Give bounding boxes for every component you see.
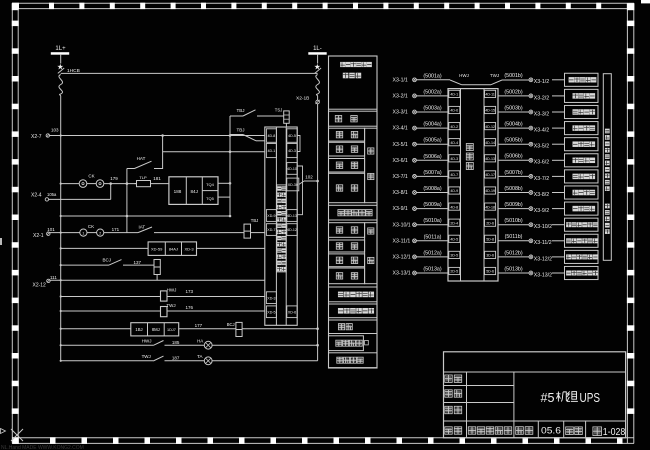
svg-text:X3-12/2: X3-12/2 xyxy=(534,256,552,262)
svg-text:5D-8: 5D-8 xyxy=(486,238,494,242)
svg-text:BCJ: BCJ xyxy=(227,322,235,327)
svg-text:(5004a): (5004a) xyxy=(423,122,441,128)
svg-text:(5001b): (5001b) xyxy=(504,73,522,79)
svg-text:(5005b): (5005b) xyxy=(504,138,522,144)
svg-text:(5006a): (5006a) xyxy=(423,154,441,160)
svg-text:105a: 105a xyxy=(47,192,57,197)
svg-text:4D-12: 4D-12 xyxy=(287,228,297,232)
svg-text:X3-1/2: X3-1/2 xyxy=(534,79,549,85)
svg-text:UPS: UPS xyxy=(580,391,601,405)
svg-text:179: 179 xyxy=(110,176,118,181)
svg-text:HAT: HAT xyxy=(137,156,146,161)
svg-text:4D-15: 4D-15 xyxy=(485,109,495,113)
svg-text:(5011b): (5011b) xyxy=(505,234,523,240)
svg-text:(5002b): (5002b) xyxy=(504,89,522,95)
svg-text:(5013b): (5013b) xyxy=(504,266,522,272)
svg-text:CK: CK xyxy=(88,224,94,229)
svg-text:X3-2/1: X3-2/1 xyxy=(393,94,408,100)
svg-text:X2-7: X2-7 xyxy=(31,134,42,140)
svg-text:3D-5: 3D-5 xyxy=(450,254,458,258)
svg-text:(5007a): (5007a) xyxy=(423,170,441,176)
svg-text:1L+: 1L+ xyxy=(55,46,66,52)
svg-text:4D-3: 4D-3 xyxy=(450,157,458,161)
svg-text:HWJ: HWJ xyxy=(167,288,177,293)
svg-text:4D-8: 4D-8 xyxy=(268,134,276,138)
svg-text:BCJ: BCJ xyxy=(103,258,112,263)
svg-text:181: 181 xyxy=(153,176,161,181)
svg-text:NL.Hand MADE WWW.KONG2.COM: NL.Hand MADE WWW.KONG2.COM xyxy=(1,445,84,450)
svg-text:173: 173 xyxy=(186,289,194,294)
svg-text:X3-7/2: X3-7/2 xyxy=(534,176,549,182)
svg-text:(5010b): (5010b) xyxy=(504,218,522,224)
svg-text:TWJ: TWJ xyxy=(142,354,151,359)
svg-text:(5012a): (5012a) xyxy=(423,250,441,256)
svg-text:171: 171 xyxy=(112,227,120,232)
svg-text:4D-10: 4D-10 xyxy=(287,167,297,171)
svg-text:X3-1/1: X3-1/1 xyxy=(393,77,408,83)
svg-text:4D-12: 4D-12 xyxy=(485,125,495,129)
svg-text:2: 2 xyxy=(99,231,101,235)
svg-text:TWJ: TWJ xyxy=(166,303,175,308)
svg-text:XD-3: XD-3 xyxy=(184,246,194,251)
svg-text:X3-11/2: X3-11/2 xyxy=(534,240,552,246)
svg-text:4D-5: 4D-5 xyxy=(450,238,458,242)
svg-text:4D-14: 4D-14 xyxy=(485,141,495,145)
svg-text:(5007b): (5007b) xyxy=(504,170,522,176)
svg-text:4D-1: 4D-1 xyxy=(268,149,276,153)
svg-text:X3-13/2: X3-13/2 xyxy=(534,272,552,278)
svg-text:TWJ: TWJ xyxy=(490,73,499,78)
svg-text:4D-17: 4D-17 xyxy=(485,173,495,177)
svg-text:IAT: IAT xyxy=(138,225,145,230)
svg-text:2D-4: 2D-4 xyxy=(450,221,458,225)
svg-text:TLP: TLP xyxy=(139,175,147,180)
svg-text:X3-4/2: X3-4/2 xyxy=(534,128,549,134)
svg-text:4D-18: 4D-18 xyxy=(485,205,495,209)
svg-text:1L-: 1L- xyxy=(313,46,322,52)
svg-text:TBJ: TBJ xyxy=(236,108,244,113)
svg-text:XD-59: XD-59 xyxy=(151,246,163,251)
svg-text:2D-5: 2D-5 xyxy=(450,270,458,274)
svg-text:4D-1: 4D-1 xyxy=(450,93,458,97)
svg-text:X3-6/1: X3-6/1 xyxy=(393,158,408,164)
svg-text:188: 188 xyxy=(174,189,182,194)
svg-text:(5008a): (5008a) xyxy=(423,186,441,192)
svg-text:X3-2/2: X3-2/2 xyxy=(534,95,549,101)
svg-text:X3-3/1: X3-3/1 xyxy=(393,110,408,116)
svg-text:X3-8/2: X3-8/2 xyxy=(534,192,549,198)
svg-text:8MJ: 8MJ xyxy=(152,327,160,332)
svg-text:X3-11/1: X3-11/1 xyxy=(393,238,411,244)
svg-text:4D-11: 4D-11 xyxy=(485,93,495,97)
svg-text:(5002a): (5002a) xyxy=(423,89,441,95)
svg-text:XD-30: XD-30 xyxy=(288,183,298,187)
svg-text:X2-1: X2-1 xyxy=(33,233,44,239)
svg-text:1DJ7: 1DJ7 xyxy=(167,328,176,332)
svg-text:XD-3: XD-3 xyxy=(267,296,275,300)
svg-text:84J: 84J xyxy=(190,189,197,194)
svg-text:4D-2: 4D-2 xyxy=(450,125,458,129)
svg-text:(5009a): (5009a) xyxy=(423,202,441,208)
svg-text:4D-6: 4D-6 xyxy=(450,109,458,113)
svg-text:TBJ: TBJ xyxy=(251,218,258,223)
svg-text:(5008b): (5008b) xyxy=(504,186,522,192)
svg-text:HWJ: HWJ xyxy=(459,73,469,78)
svg-text:CK: CK xyxy=(88,174,94,179)
svg-text:(5003a): (5003a) xyxy=(423,106,441,112)
svg-text:TBJ: TBJ xyxy=(236,127,244,132)
svg-text:XD-5: XD-5 xyxy=(267,310,275,314)
svg-text:TSJ: TSJ xyxy=(275,108,282,113)
svg-text:4D-13: 4D-13 xyxy=(287,214,297,218)
svg-text:X3-10/2: X3-10/2 xyxy=(534,224,552,230)
svg-text:(5003b): (5003b) xyxy=(504,105,522,111)
svg-text:(5001a): (5001a) xyxy=(423,73,441,79)
svg-text:187: 187 xyxy=(172,356,180,361)
svg-text:4D-5: 4D-5 xyxy=(288,134,296,138)
svg-text:X3-3/2: X3-3/2 xyxy=(534,111,549,117)
svg-text:X3-9/1: X3-9/1 xyxy=(393,206,408,212)
svg-text:05.6: 05.6 xyxy=(541,426,561,436)
svg-text:X2-4: X2-4 xyxy=(31,193,42,199)
svg-text:X3-8/1: X3-8/1 xyxy=(393,190,408,196)
svg-text:XD-9: XD-9 xyxy=(267,214,275,218)
svg-text:X3-6/2: X3-6/2 xyxy=(534,160,549,166)
svg-text:X2-12: X2-12 xyxy=(33,283,47,289)
svg-text:103: 103 xyxy=(51,128,59,133)
svg-text:4D-9: 4D-9 xyxy=(450,189,458,193)
svg-text:(5004b): (5004b) xyxy=(504,122,522,128)
svg-text:XD-6: XD-6 xyxy=(288,310,296,314)
svg-text:X2-1B: X2-1B xyxy=(296,96,309,102)
svg-text:X3-4/1: X3-4/1 xyxy=(393,126,408,132)
svg-text:(5011a): (5011a) xyxy=(424,234,442,240)
svg-text:(5006b): (5006b) xyxy=(504,154,522,160)
svg-text:1: 1 xyxy=(82,231,84,235)
svg-text:185: 185 xyxy=(172,340,180,345)
svg-text:X3-7/1: X3-7/1 xyxy=(393,174,408,180)
svg-text:4D-4: 4D-4 xyxy=(450,141,458,145)
svg-text:111: 111 xyxy=(50,275,57,280)
svg-text:(5013a): (5013a) xyxy=(423,267,441,273)
svg-text:4D-8: 4D-8 xyxy=(450,205,458,209)
svg-text:137: 137 xyxy=(133,260,141,265)
svg-text:TQ4: TQ4 xyxy=(206,182,215,187)
svg-text:(5012b): (5012b) xyxy=(504,250,522,256)
svg-text:HA: HA xyxy=(197,338,203,343)
svg-text:#5: #5 xyxy=(541,391,555,405)
svg-text:3D-6: 3D-6 xyxy=(486,254,494,258)
svg-text:(5009b): (5009b) xyxy=(504,202,522,208)
svg-text:2D-6: 2D-6 xyxy=(486,221,494,225)
svg-text:X3-5/2: X3-5/2 xyxy=(534,144,549,150)
svg-text:X3-13/1: X3-13/1 xyxy=(393,271,411,277)
svg-text:176: 176 xyxy=(186,305,194,310)
svg-text:4D-19: 4D-19 xyxy=(485,189,495,193)
svg-text:X3-9/2: X3-9/2 xyxy=(534,208,549,214)
svg-text:84AJ: 84AJ xyxy=(169,246,178,251)
svg-text:TQ5: TQ5 xyxy=(206,196,215,201)
svg-text:HWJ: HWJ xyxy=(142,339,152,344)
svg-text:TA: TA xyxy=(197,354,202,359)
svg-text:101: 101 xyxy=(47,227,55,232)
svg-text:4D-13: 4D-13 xyxy=(485,157,495,161)
svg-text:X3-12/1: X3-12/1 xyxy=(393,255,411,261)
svg-text:177: 177 xyxy=(195,323,203,328)
svg-text:XD-7: XD-7 xyxy=(267,228,275,232)
svg-text:1BJ: 1BJ xyxy=(135,327,142,332)
svg-text:(5005a): (5005a) xyxy=(423,138,441,144)
svg-text:4D-3: 4D-3 xyxy=(288,149,296,153)
svg-text:(5010a): (5010a) xyxy=(423,218,441,224)
svg-text:5D-6: 5D-6 xyxy=(486,270,494,274)
svg-text:1-028: 1-028 xyxy=(603,426,626,438)
svg-text:102: 102 xyxy=(305,175,313,180)
svg-text:X3-5/1: X3-5/1 xyxy=(393,142,408,148)
svg-text:X3-10/1: X3-10/1 xyxy=(393,222,411,228)
svg-text:4D-7: 4D-7 xyxy=(450,173,458,177)
